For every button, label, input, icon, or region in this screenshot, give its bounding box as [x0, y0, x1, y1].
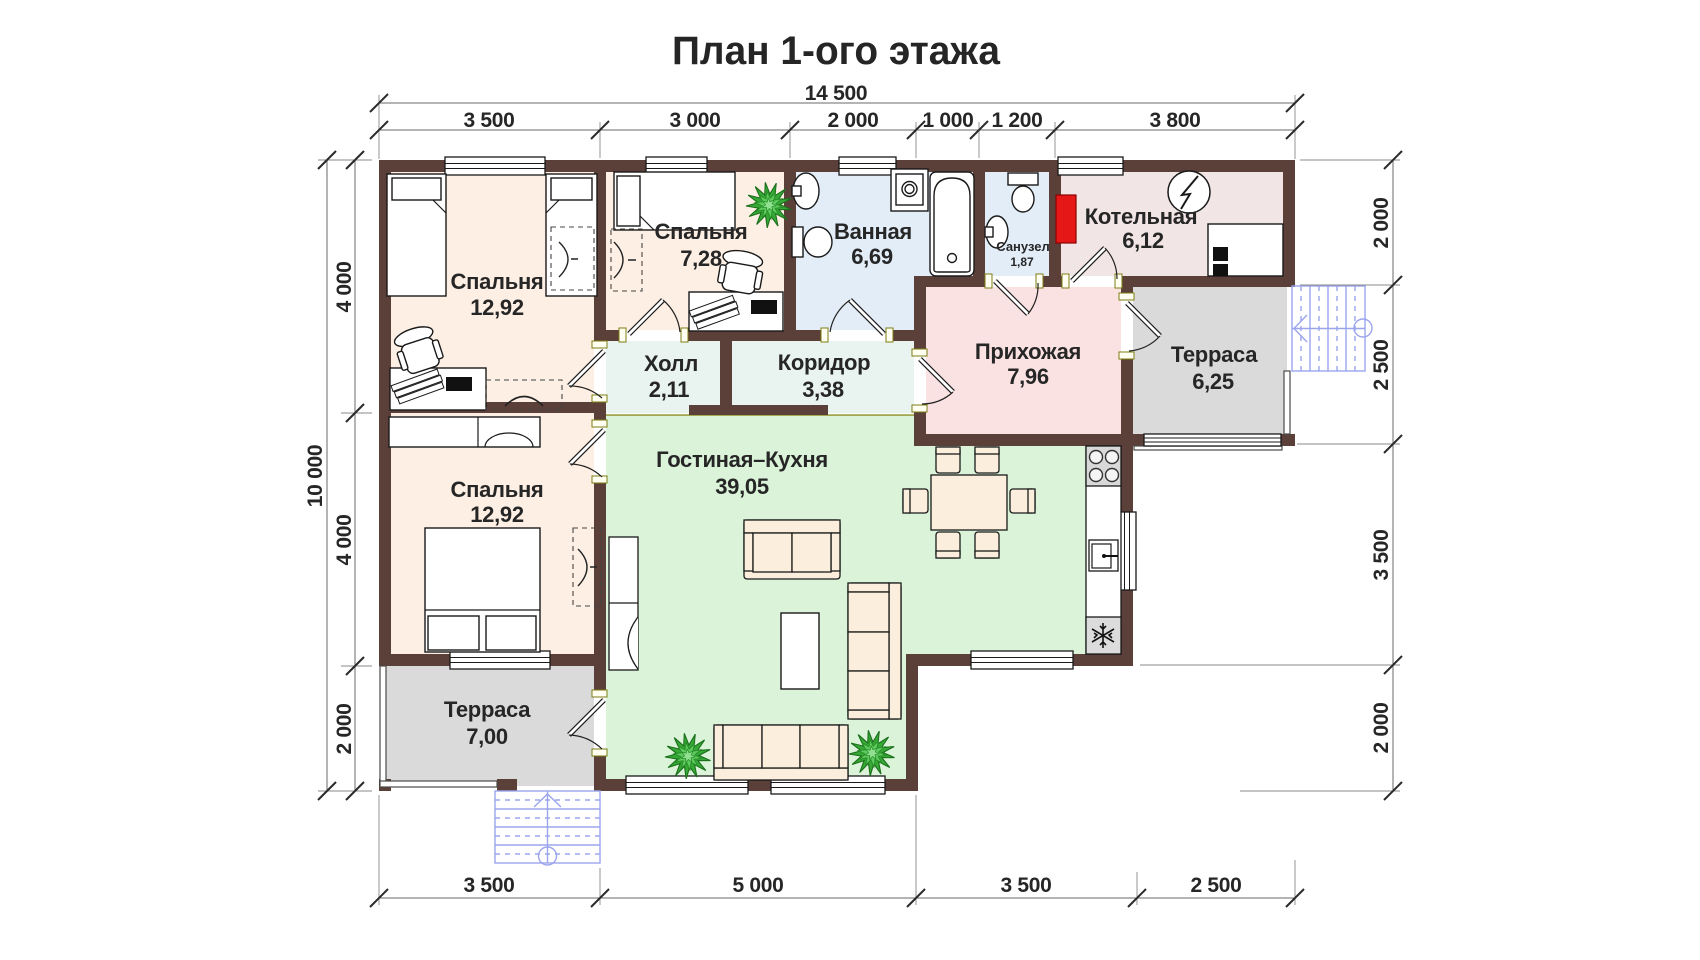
svg-text:Прихожая: Прихожая	[975, 339, 1081, 364]
svg-text:6,25: 6,25	[1192, 369, 1234, 394]
svg-text:2 000: 2 000	[827, 109, 878, 132]
svg-text:6,12: 6,12	[1122, 228, 1164, 253]
svg-text:14 500: 14 500	[805, 82, 867, 105]
svg-text:4 000: 4 000	[333, 514, 356, 565]
svg-text:3 500: 3 500	[463, 874, 514, 897]
svg-text:39,05: 39,05	[715, 474, 769, 499]
svg-text:12,92: 12,92	[470, 295, 524, 320]
svg-text:Санузел: Санузел	[996, 239, 1049, 254]
svg-text:2 000: 2 000	[333, 703, 356, 754]
svg-text:10 000: 10 000	[304, 445, 327, 507]
svg-text:3 500: 3 500	[1000, 874, 1051, 897]
svg-text:Холл: Холл	[644, 351, 698, 376]
svg-text:Ванная: Ванная	[834, 219, 912, 244]
svg-text:5 000: 5 000	[732, 874, 783, 897]
svg-text:1 000: 1 000	[922, 109, 973, 132]
svg-text:3 500: 3 500	[463, 109, 514, 132]
svg-text:3 500: 3 500	[1370, 529, 1393, 580]
svg-text:3 800: 3 800	[1149, 109, 1200, 132]
svg-text:Коридор: Коридор	[778, 350, 871, 375]
svg-text:3 000: 3 000	[669, 109, 720, 132]
svg-text:Котельная: Котельная	[1085, 204, 1198, 229]
svg-text:2,11: 2,11	[649, 377, 689, 402]
svg-text:2 000: 2 000	[1370, 197, 1393, 248]
svg-text:План 1-ого этажа: План 1-ого этажа	[672, 29, 1001, 73]
svg-text:3,38: 3,38	[802, 377, 844, 402]
svg-text:2 500: 2 500	[1370, 339, 1393, 390]
svg-text:Спальня: Спальня	[451, 269, 544, 294]
svg-text:Спальня: Спальня	[655, 219, 748, 244]
svg-text:7,00: 7,00	[466, 724, 508, 749]
svg-text:2 500: 2 500	[1190, 874, 1241, 897]
svg-text:12,92: 12,92	[470, 502, 524, 527]
svg-text:4 000: 4 000	[333, 261, 356, 312]
svg-text:Гостиная–Кухня: Гостиная–Кухня	[656, 447, 828, 472]
svg-text:1 200: 1 200	[991, 109, 1042, 132]
svg-text:Спальня: Спальня	[451, 477, 544, 502]
svg-text:6,69: 6,69	[851, 244, 893, 269]
svg-text:1,87: 1,87	[1010, 255, 1034, 269]
svg-text:Терраса: Терраса	[444, 697, 531, 722]
svg-text:Терраса: Терраса	[1171, 342, 1258, 367]
svg-text:2 000: 2 000	[1370, 702, 1393, 753]
svg-text:7,96: 7,96	[1007, 364, 1049, 389]
svg-text:7,28: 7,28	[680, 246, 722, 271]
